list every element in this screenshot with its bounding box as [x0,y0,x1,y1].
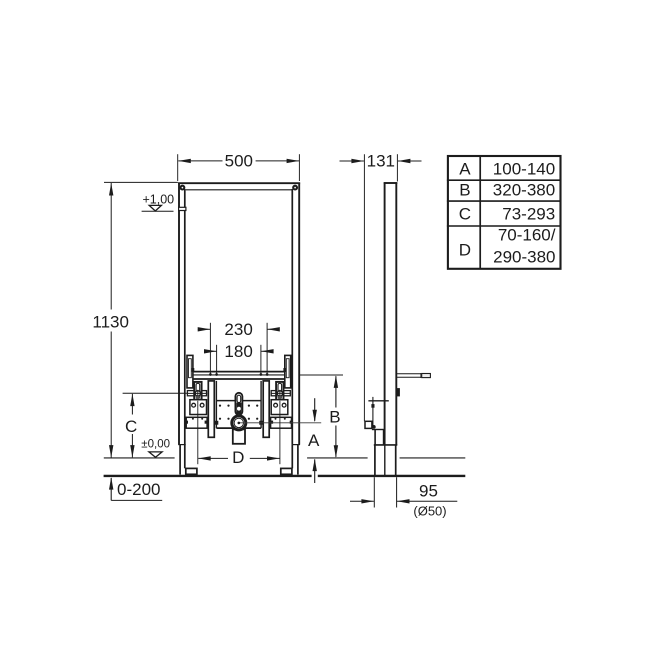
svg-text:A: A [308,431,320,450]
svg-text:70-160/: 70-160/ [498,226,556,245]
svg-text:230: 230 [224,320,252,339]
svg-text:73-293: 73-293 [502,204,555,223]
svg-text:D: D [459,241,471,260]
svg-text:±0,00: ±0,00 [141,439,170,451]
svg-text:95: 95 [419,481,438,500]
svg-text:131: 131 [367,152,395,171]
svg-text:A: A [459,159,471,178]
svg-text:500: 500 [225,152,253,171]
svg-text:(Ø50): (Ø50) [413,503,446,518]
svg-text:C: C [459,204,471,223]
svg-text:B: B [459,180,470,199]
svg-text:1130: 1130 [92,312,129,331]
svg-text:180: 180 [224,342,252,361]
svg-text:+1,00: +1,00 [143,192,175,206]
svg-text:100-140: 100-140 [493,159,555,178]
svg-text:B: B [329,407,340,426]
svg-text:D: D [232,448,244,467]
svg-text:320-380: 320-380 [493,180,555,199]
svg-text:0-200: 0-200 [117,480,160,499]
svg-text:290-380: 290-380 [493,247,555,266]
svg-text:C: C [125,417,137,436]
